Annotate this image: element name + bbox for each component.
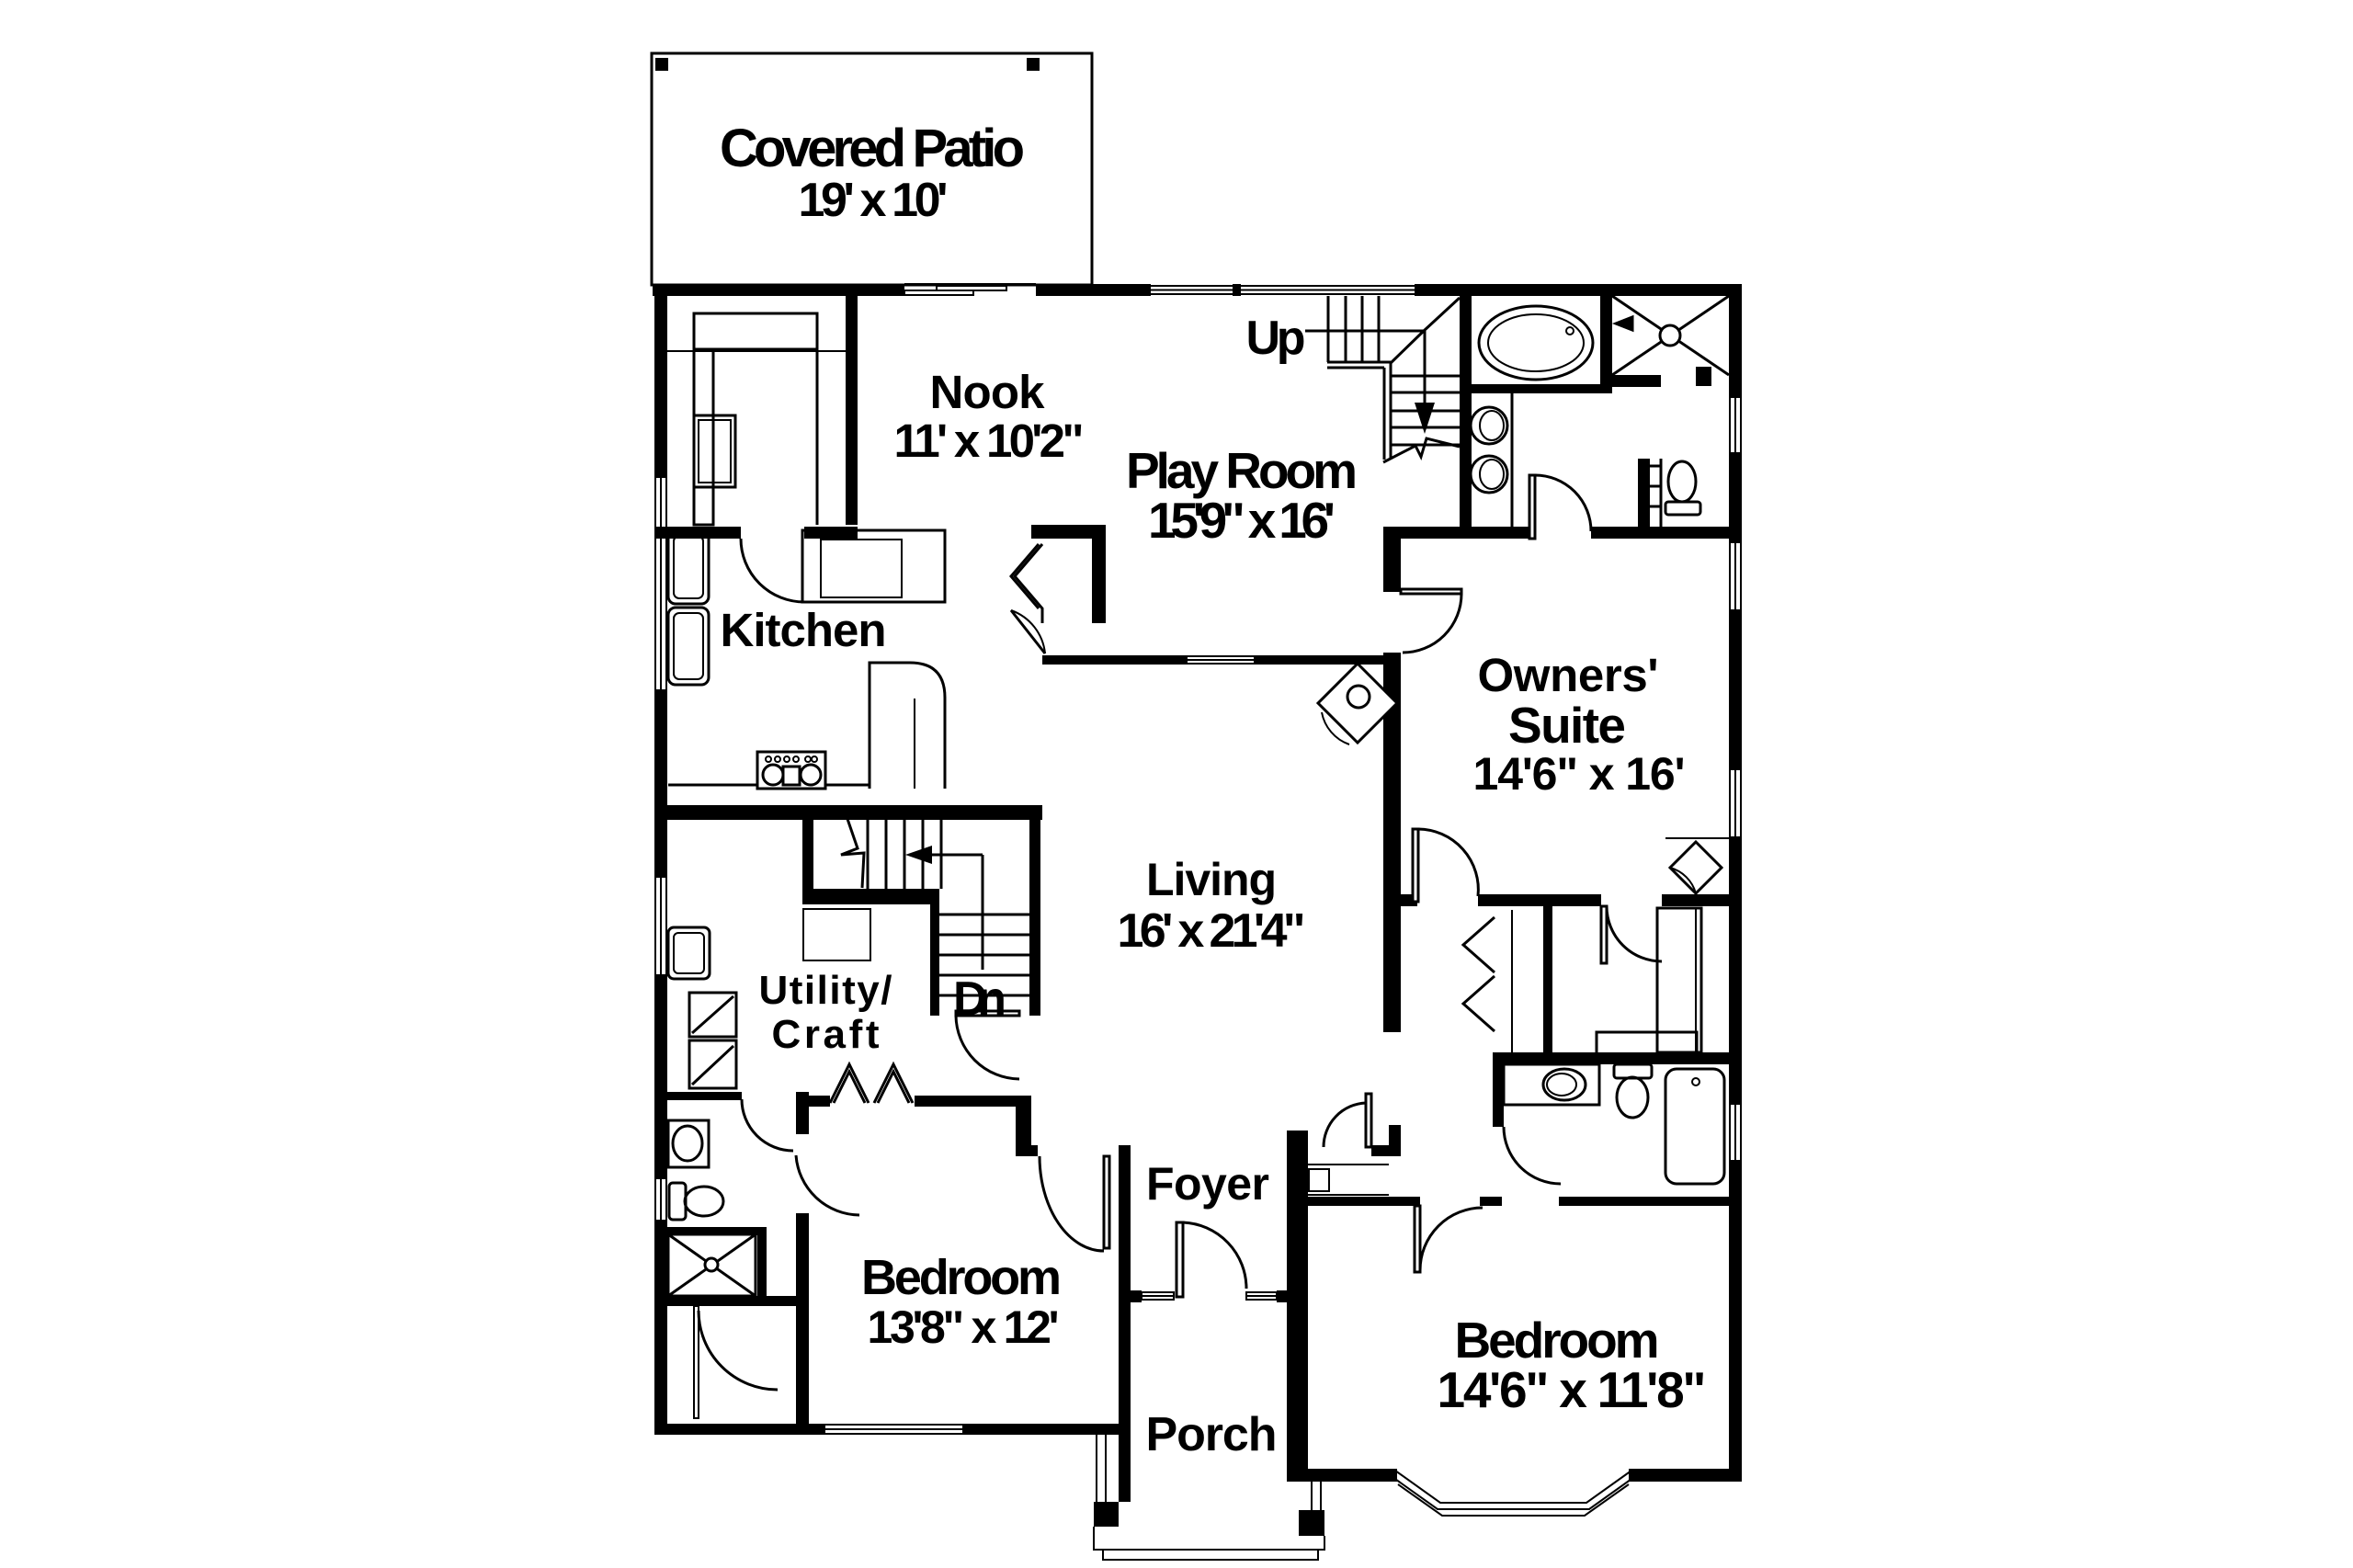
svg-text:Play Room: Play Room bbox=[1126, 442, 1358, 499]
svg-text:11' x 10'2": 11' x 10'2" bbox=[894, 415, 1085, 467]
svg-text:16' x 21'4": 16' x 21'4" bbox=[1118, 904, 1306, 958]
svg-text:15'9" x 16': 15'9" x 16' bbox=[1148, 492, 1336, 549]
svg-text:Kitchen: Kitchen bbox=[721, 604, 887, 656]
svg-text:19' x 10': 19' x 10' bbox=[799, 174, 949, 227]
svg-text:Foyer: Foyer bbox=[1146, 1158, 1269, 1210]
svg-text:Up: Up bbox=[1246, 312, 1306, 365]
svg-text:Dn: Dn bbox=[953, 972, 1006, 1026]
svg-text:Porch: Porch bbox=[1146, 1408, 1278, 1461]
svg-text:14'6" x 16': 14'6" x 16' bbox=[1473, 748, 1686, 800]
svg-text:Suite: Suite bbox=[1508, 697, 1626, 754]
svg-text:Bedroom: Bedroom bbox=[861, 1250, 1062, 1305]
svg-text:Living: Living bbox=[1146, 854, 1277, 905]
svg-text:Utility/: Utility/ bbox=[759, 968, 892, 1013]
svg-text:Covered Patio: Covered Patio bbox=[720, 119, 1025, 178]
svg-text:Nook: Nook bbox=[930, 366, 1046, 418]
svg-text:Owners': Owners' bbox=[1478, 649, 1659, 701]
svg-text:14'6" x 11'8": 14'6" x 11'8" bbox=[1438, 1361, 1707, 1418]
svg-text:Bedroom: Bedroom bbox=[1455, 1312, 1660, 1369]
svg-text:13'8" x 12': 13'8" x 12' bbox=[868, 1301, 1060, 1353]
